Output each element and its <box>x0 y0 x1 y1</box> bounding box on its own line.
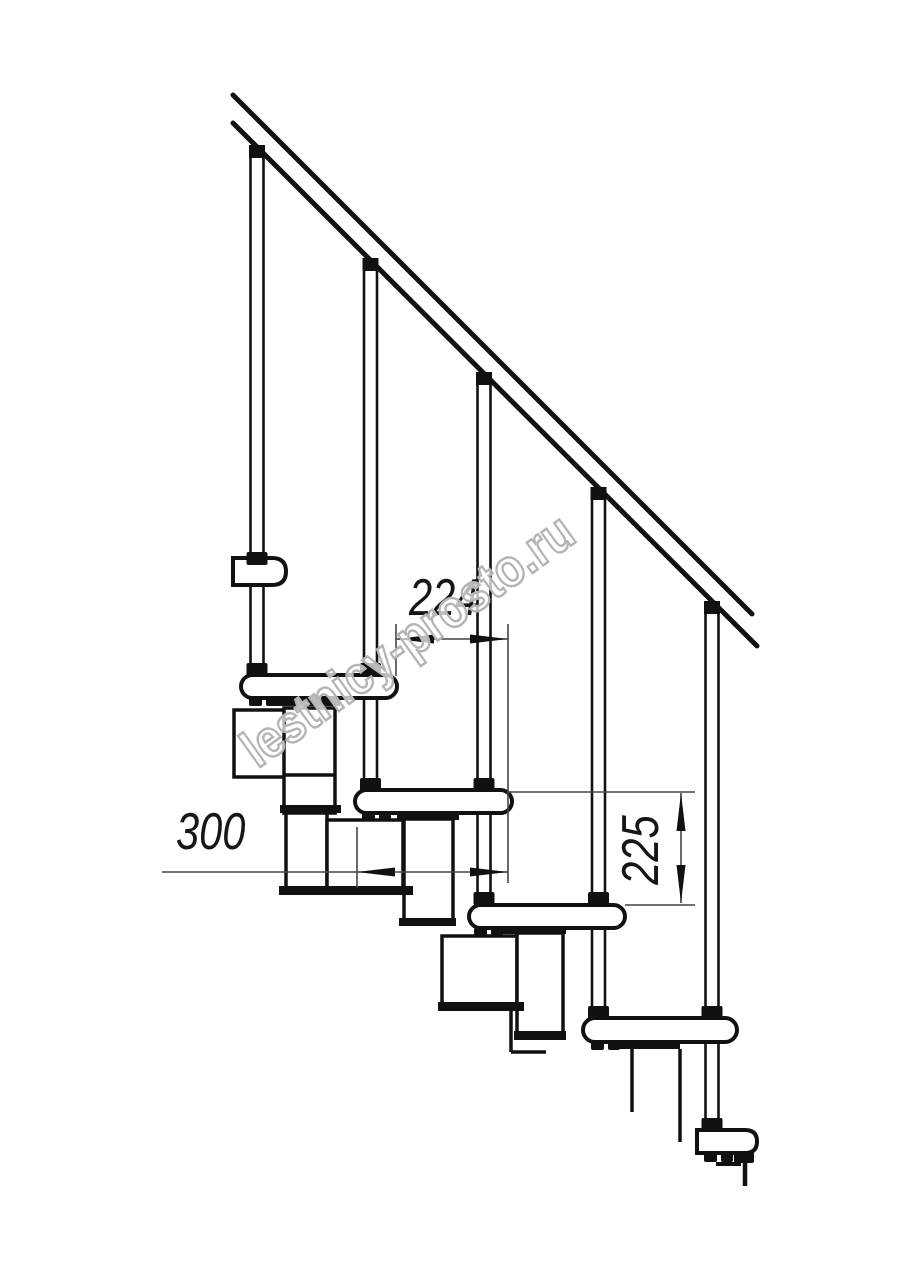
baluster-5 <box>706 606 719 1131</box>
baluster-2 <box>364 263 377 791</box>
tread-5 <box>697 1130 757 1153</box>
tread-4 <box>583 1018 737 1042</box>
staircase-technical-drawing: 224 300 225 lestnicy-prosto.ru <box>0 0 914 1280</box>
dimension-label-rise: 225 <box>615 815 667 884</box>
baluster-4 <box>592 492 605 1019</box>
tread-2 <box>355 790 512 813</box>
tread-3 <box>469 905 625 928</box>
dimension-label-width: 300 <box>176 806 245 858</box>
baluster-1 <box>251 150 264 676</box>
